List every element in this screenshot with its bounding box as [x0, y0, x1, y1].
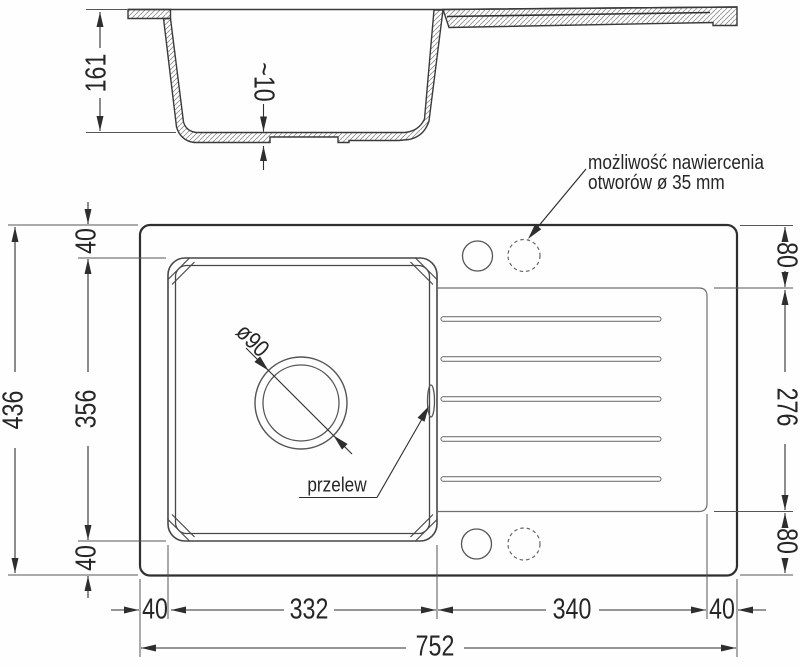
drainer-groove	[441, 357, 661, 362]
dim-label-depth: 161	[81, 54, 114, 93]
drainer-groove	[441, 397, 661, 402]
dim-label-total-width: 752	[416, 631, 455, 664]
section-view	[86, 7, 737, 170]
bowl-inner-rim	[176, 266, 430, 534]
faucet-hole-top	[463, 241, 493, 271]
dim-label-bowl-width: 332	[290, 594, 329, 627]
drainer-grooves	[441, 317, 661, 482]
drill-note-leader-line	[537, 169, 586, 228]
dim-label-bottom-margin: 40	[71, 545, 104, 571]
overflow-leader-arrow	[418, 406, 430, 422]
dim-label-drainer-bottom-margin: 80	[770, 528, 800, 554]
dim-label-bottom-thickness: ~10	[247, 62, 280, 101]
sink-technical-drawing: 161 ~10 436 40 356 40 80 276 80 40 332 3…	[0, 0, 800, 668]
drainer-groove	[441, 317, 661, 322]
section-drainboard-wedge	[443, 7, 737, 28]
section-bowl-shell	[164, 10, 444, 143]
overflow-slot	[428, 385, 435, 417]
section-left-rim-block	[128, 10, 171, 19]
dim-label-drainer-width: 340	[553, 594, 592, 627]
overflow-label: przelew	[307, 475, 366, 498]
overflow-leader-line	[377, 419, 422, 498]
drainer-groove	[441, 477, 661, 482]
dim-label-drainer-top-margin: 80	[770, 242, 800, 268]
drill-note-leader-arrow	[528, 224, 541, 239]
drawing-linework	[0, 0, 800, 668]
bowl-corner-chamfers	[168, 258, 438, 542]
faucet-hole-bottom	[462, 529, 492, 559]
bowl-outer-rim	[168, 258, 437, 541]
dim-label-drainer-height: 276	[770, 388, 800, 427]
dim-label-top-margin: 40	[71, 228, 104, 254]
dim-label-left-margin: 40	[142, 594, 168, 627]
plan-view	[140, 169, 737, 576]
optional-hole-top	[508, 240, 540, 272]
dim-label-bowl-height: 356	[71, 390, 104, 429]
optional-hole-bottom	[508, 528, 540, 560]
drainer-groove	[441, 437, 661, 442]
drill-note-label: możliwość nawiercenia otworów ø 35 mm	[588, 153, 764, 193]
dim-label-total-height: 436	[0, 391, 31, 430]
dim-label-right-margin: 40	[709, 594, 735, 627]
